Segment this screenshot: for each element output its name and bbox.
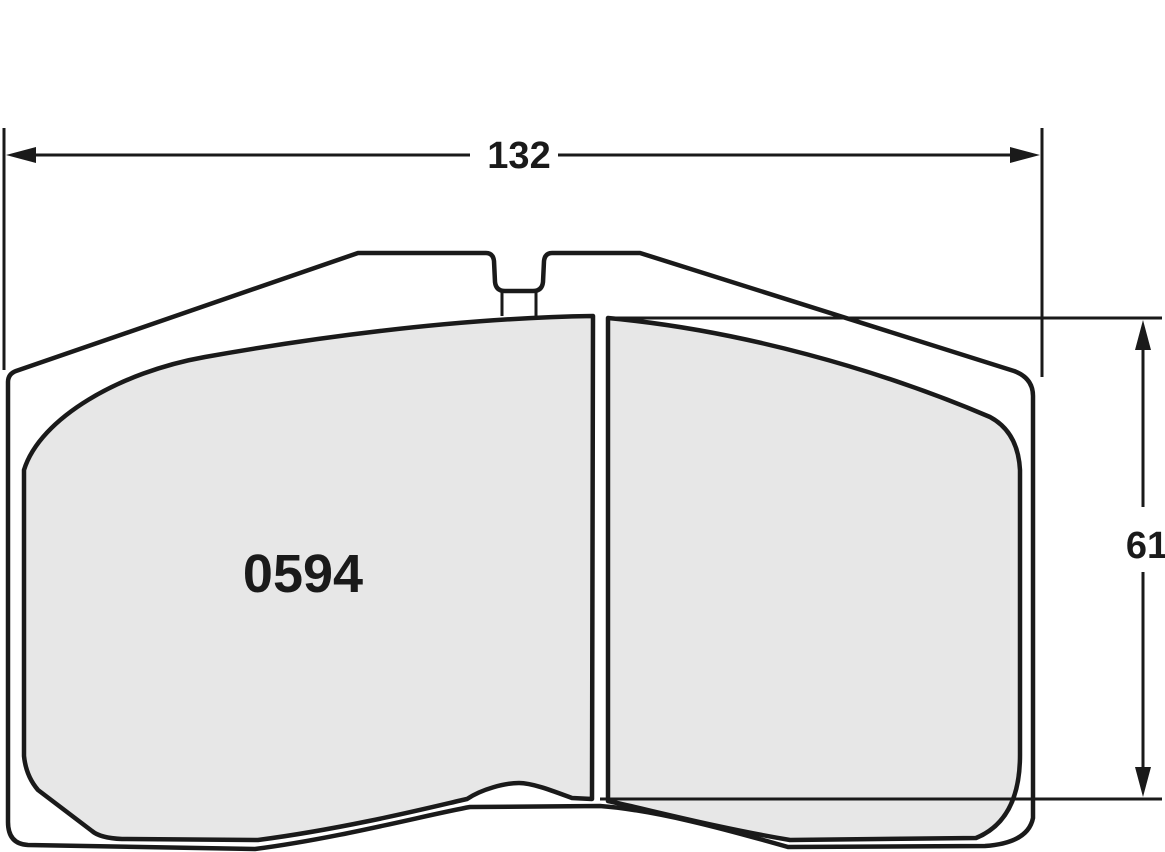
arrow-right-icon — [1010, 147, 1040, 163]
arrow-up-icon — [1135, 320, 1151, 350]
height-dimension-label: 61 — [1126, 525, 1165, 567]
arrow-left-icon — [6, 147, 36, 163]
part-number-label: 0594 — [243, 544, 363, 604]
brake-pad-drawing-canvas: 132 61 0594 — [0, 0, 1165, 852]
arrow-down-icon — [1135, 767, 1151, 797]
width-dimension-label: 132 — [487, 135, 550, 177]
brake-pad-technical-drawing: 132 61 0594 — [0, 0, 1165, 852]
